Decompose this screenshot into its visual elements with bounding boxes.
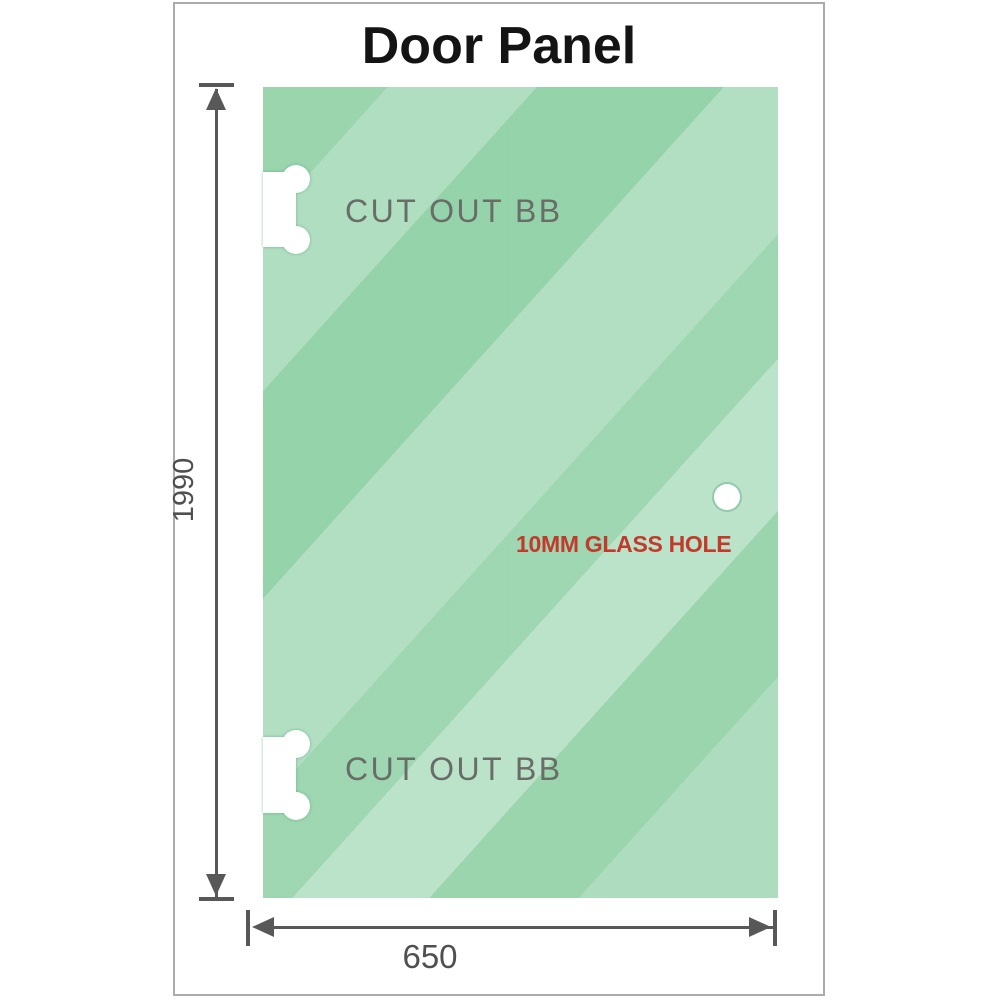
height-dimension-down-arrowhead <box>206 874 226 896</box>
glass-hole-label: 10MM GLASS HOLE <box>516 531 731 558</box>
cutout-top-label: CUT OUT BB <box>345 193 565 230</box>
height-dimension-value: 1990 <box>168 455 204 525</box>
hinge-cutout-top <box>263 165 311 255</box>
diagram-title: Door Panel <box>173 16 825 76</box>
width-dimension-left-tick <box>246 910 250 946</box>
width-dimension-left-arrowhead <box>252 917 274 937</box>
glass-hole <box>714 484 740 510</box>
hinge-cutout-top-lower-lobe <box>282 226 310 254</box>
door-panel-diagram: Door Panel CUT OUT BB CUT OUT BB 10MM GL… <box>0 0 1000 1000</box>
hinge-cutout-bottom <box>263 730 311 820</box>
hinge-cutout-bottom-upper-lobe <box>282 730 310 758</box>
width-dimension-line <box>266 926 776 929</box>
cutout-bottom-label: CUT OUT BB <box>345 751 565 788</box>
height-dimension-top-tick <box>199 83 234 87</box>
height-dimension-up-arrowhead <box>206 88 226 110</box>
hinge-cutout-bottom-lower-lobe <box>282 792 310 820</box>
width-dimension-right-arrowhead <box>749 917 771 937</box>
width-dimension-right-tick <box>773 910 777 946</box>
height-dimension-bottom-tick <box>199 897 234 901</box>
hinge-cutout-top-upper-lobe <box>282 165 310 193</box>
height-dimension-line <box>215 89 218 897</box>
width-dimension-value: 650 <box>400 938 460 976</box>
